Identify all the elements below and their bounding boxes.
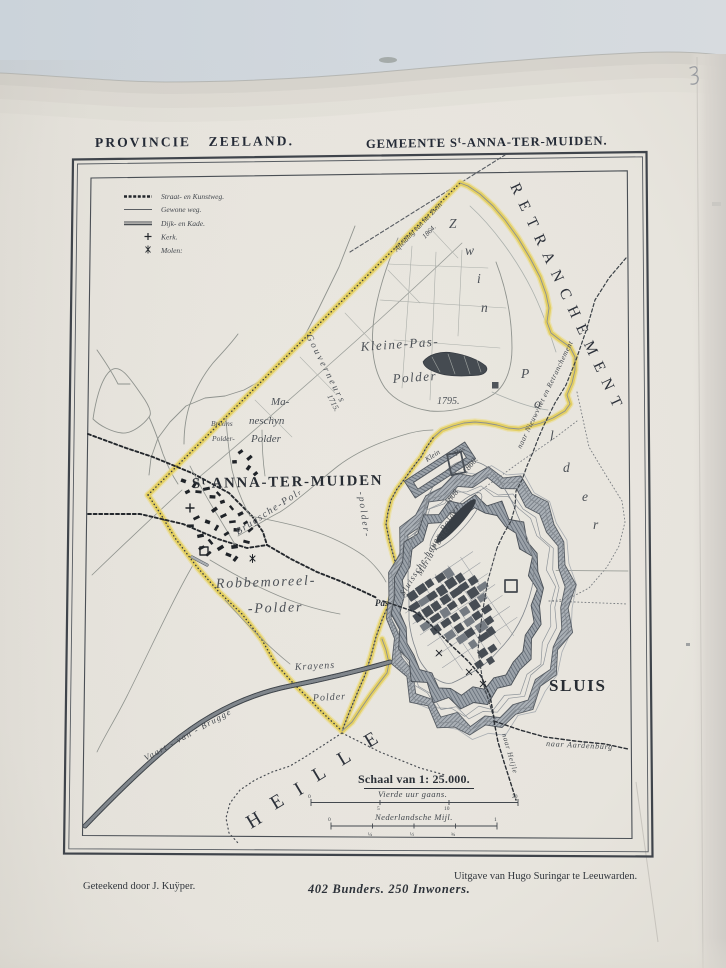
svg-text:Gewone weg.: Gewone weg. [161,205,202,214]
svg-text:0: 0 [308,794,311,800]
svg-text:Z: Z [449,216,457,231]
svg-text:Ma-: Ma- [270,396,290,408]
svg-text:r: r [593,517,599,532]
svg-text:Polder: Polder [312,691,347,704]
svg-text:Polder: Polder [250,433,282,445]
svg-text:Straat- en Kunstweg.: Straat- en Kunstweg. [161,192,224,201]
svg-text:St ANNA-TER-MUIDEN: St ANNA-TER-MUIDEN [192,473,384,492]
svg-text:SLUIS: SLUIS [549,676,607,695]
svg-text:e: e [582,489,588,504]
svg-text:Kerk.: Kerk. [160,233,178,242]
svg-text:¼: ¼ [368,832,372,838]
svg-text:n: n [481,300,488,315]
svg-text:PROVINCIE ZEELAND.: PROVINCIE ZEELAND. [95,133,294,150]
svg-text:l: l [550,428,554,443]
svg-text:402 Bunders. 250 Inwoners.: 402 Bunders. 250 Inwoners. [307,882,470,896]
svg-text:P: P [520,366,529,381]
svg-text:Schaal van 1: 25.000.: Schaal van 1: 25.000. [358,772,470,786]
svg-text:i: i [477,271,481,286]
svg-text:d: d [563,460,570,475]
svg-text:Dijk- en Kade.: Dijk- en Kade. [160,219,205,228]
svg-text:1795.: 1795. [437,396,460,407]
svg-text:Nederlandsche Mijl.: Nederlandsche Mijl. [374,812,453,822]
svg-text:Geteekend door J. Kuÿper.: Geteekend door J. Kuÿper. [83,881,195,892]
svg-text:Polder: Polder [391,368,437,386]
svg-text:-Polder: -Polder [248,600,304,617]
svg-text:1: 1 [494,817,497,823]
svg-text:Vierde uur gaans.: Vierde uur gaans. [378,789,447,799]
svg-text:w: w [465,243,474,258]
svg-text:Pas: Pas [375,598,389,608]
svg-text:½: ½ [410,831,414,838]
svg-text:Polder-: Polder- [211,434,235,443]
svg-text:Brixins: Brixins [211,419,233,428]
svg-text:¾: ¾ [451,831,455,838]
svg-text:neschyn: neschyn [249,415,285,427]
svg-text:Krayens: Krayens [294,660,336,673]
svg-text:Uitgave van Hugo Suringar te L: Uitgave van Hugo Suringar te Leeuwarden. [454,871,637,882]
svg-text:20: 20 [512,794,518,800]
svg-text:0: 0 [328,817,331,823]
svg-text:Molen:: Molen: [160,246,183,255]
